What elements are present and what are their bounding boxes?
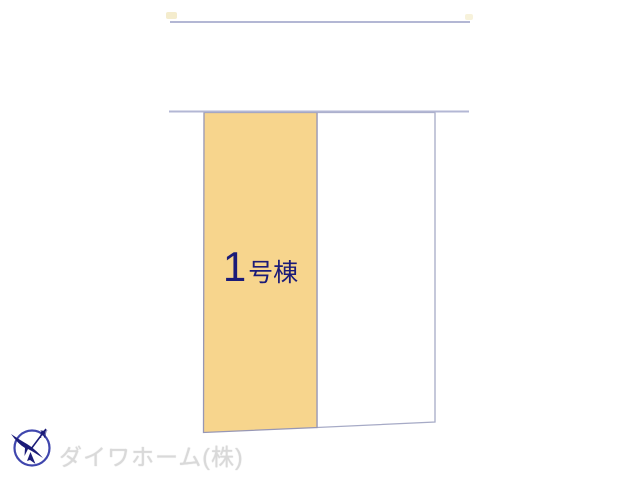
bird-tail: [27, 452, 36, 464]
site-plan-canvas: 1 号棟 N ダイワホーム(株): [0, 0, 640, 480]
faint-dimension-mark-right: [465, 14, 473, 20]
plot-unit-1: [204, 113, 318, 433]
north-compass-icon: N: [6, 420, 56, 470]
plot-adjacent-lot: [317, 113, 435, 428]
faint-dimension-mark-left: [166, 12, 177, 19]
site-plan-drawing: [0, 0, 640, 480]
company-name: ダイワホーム(株): [59, 444, 244, 472]
north-label: N: [38, 427, 48, 441]
